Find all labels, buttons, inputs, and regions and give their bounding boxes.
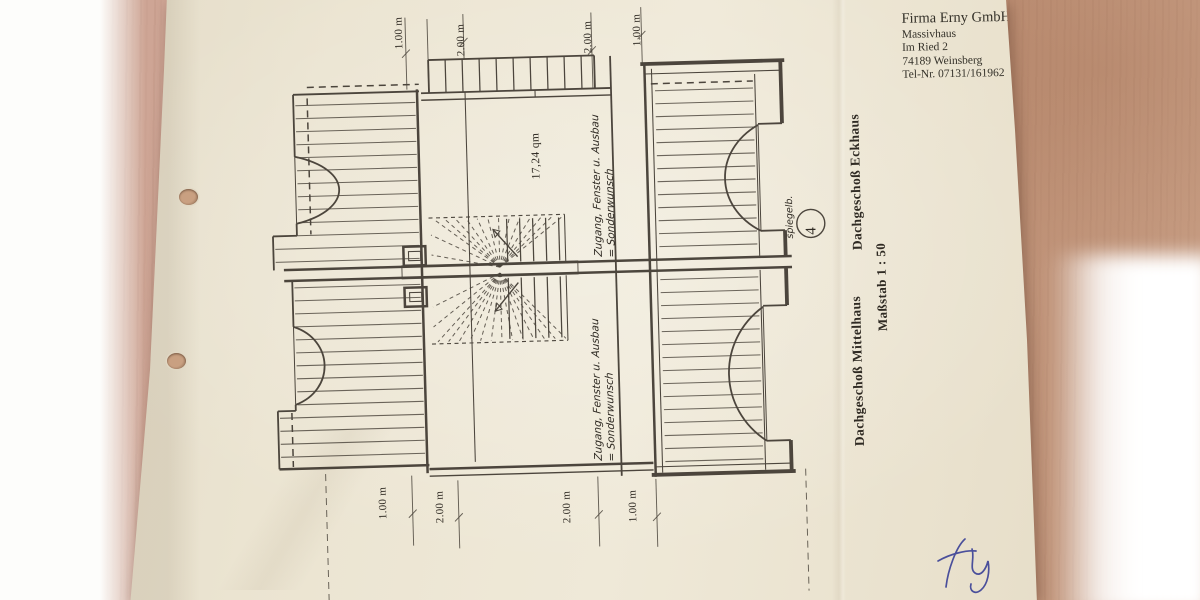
balcony-strip [420,55,611,100]
punch-hole-bottom [167,353,186,369]
dim-bottom-3: 2.00 m [561,491,574,524]
plan-sheet-wrap: Firma Erny GmbH Massivhaus Im Ried 2 741… [0,0,1200,600]
railing-ticks [428,56,582,93]
dim-top-2: 2.00 m [455,24,468,57]
signature-mark [928,530,1008,600]
note-sonderwunsch-bottom: Zugang, Fenster u. Ausbau = Sonderwunsch [589,318,619,462]
dim-bottom-1: 1.00 m [377,487,390,520]
company-line-5: Tel-Nr. 07131/161962 [902,65,1112,82]
punch-hole-top [179,189,198,205]
note-sonderwunsch-top: Zugang, Fenster u. Ausbau = Sonderwunsch [589,114,619,258]
dim-top-3: 2.00 m [582,21,595,54]
dim-bottom-4: 1.00 m [627,490,640,523]
roof-area-left-top [269,84,424,270]
company-title-block: Firma Erny GmbH Massivhaus Im Ried 2 741… [901,9,1112,82]
plan-sheet: Firma Erny GmbH Massivhaus Im Ried 2 741… [0,0,1200,600]
roof-area-right-bottom [646,268,796,475]
dimension-lines-bottom [326,461,809,600]
detail-circle-number: 4 [803,227,820,235]
centre-walls [416,55,654,481]
label-area-qm: 17,24 qm [529,133,542,180]
dim-top-4: 1.00 m [631,14,644,47]
label-spiegelbildlich: spiegelb. [784,195,796,238]
floor-plan-drawing [0,0,1200,600]
company-name: Firma Erny GmbH [901,9,1111,26]
dim-bottom-2: 2.00 m [434,491,447,524]
stair-bottom [404,271,568,344]
label-massstab: Maßstab 1 : 50 [873,243,891,332]
photo-scene: Firma Erny GmbH Massivhaus Im Ried 2 741… [0,0,1200,600]
dim-top-1: 1.00 m [393,17,406,50]
